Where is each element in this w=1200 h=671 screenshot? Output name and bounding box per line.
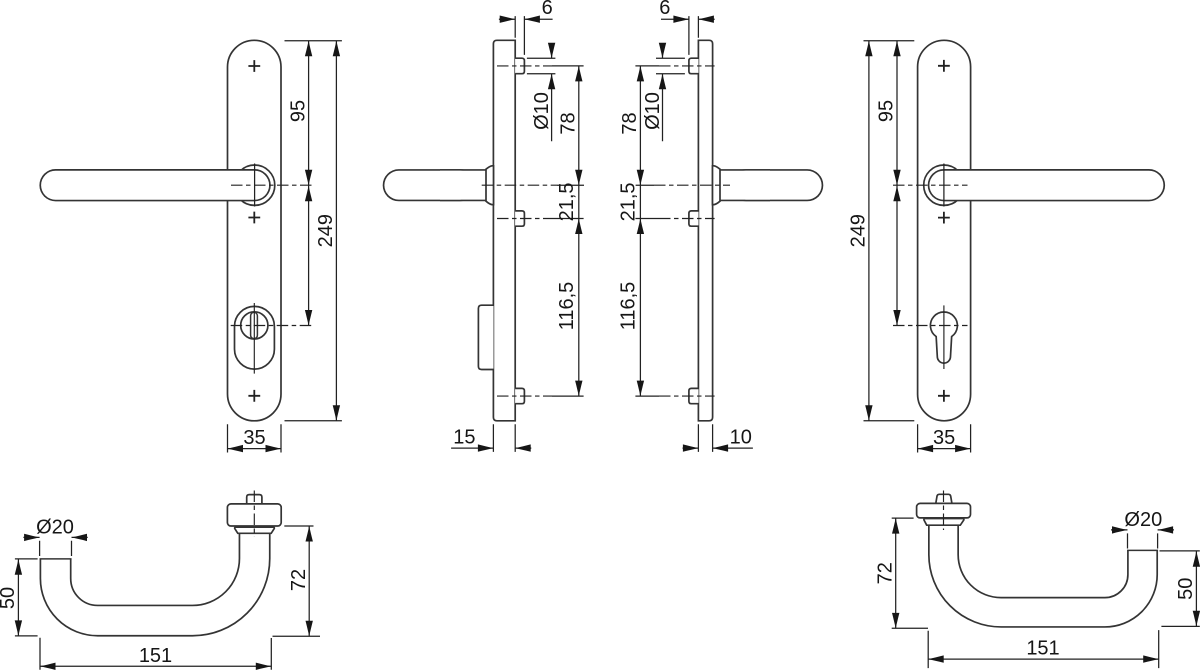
svg-text:50: 50 xyxy=(0,587,19,609)
svg-text:35: 35 xyxy=(933,427,955,449)
svg-text:Ø10: Ø10 xyxy=(642,92,664,130)
svg-text:15: 15 xyxy=(453,427,475,449)
svg-text:72: 72 xyxy=(874,562,896,584)
svg-text:6: 6 xyxy=(542,0,553,19)
svg-text:Ø20: Ø20 xyxy=(1124,509,1162,531)
svg-text:10: 10 xyxy=(730,427,752,449)
svg-text:116,5: 116,5 xyxy=(618,282,640,331)
svg-text:249: 249 xyxy=(315,214,337,247)
svg-text:78: 78 xyxy=(558,112,580,134)
svg-text:116,5: 116,5 xyxy=(556,282,578,331)
svg-text:249: 249 xyxy=(848,214,870,247)
svg-text:6: 6 xyxy=(659,0,670,19)
svg-text:Ø20: Ø20 xyxy=(36,517,74,539)
svg-text:21,5: 21,5 xyxy=(556,182,578,221)
svg-text:78: 78 xyxy=(619,112,641,134)
svg-text:72: 72 xyxy=(288,569,310,591)
svg-text:21,5: 21,5 xyxy=(618,182,640,221)
svg-text:95: 95 xyxy=(876,100,898,122)
svg-text:151: 151 xyxy=(139,645,172,667)
svg-text:Ø10: Ø10 xyxy=(531,92,553,130)
svg-text:50: 50 xyxy=(1175,578,1197,600)
svg-text:35: 35 xyxy=(243,427,265,449)
svg-text:151: 151 xyxy=(1026,638,1059,660)
svg-text:95: 95 xyxy=(287,100,309,122)
